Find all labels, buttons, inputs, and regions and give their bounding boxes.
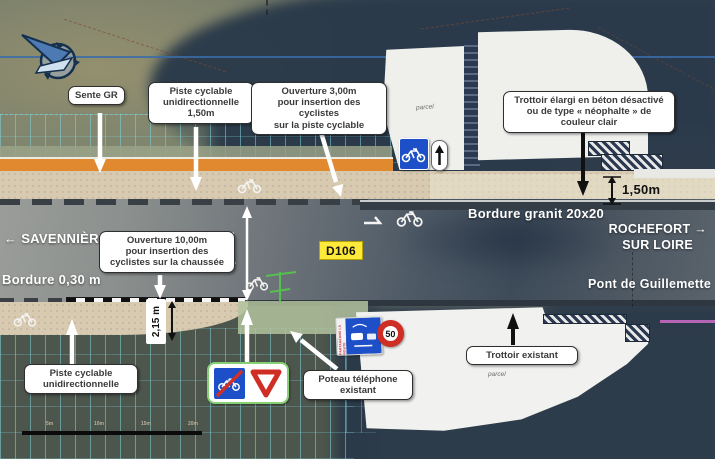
parcel-label-bottom: parcel [488, 371, 506, 378]
arrow-ouverture-10m [154, 275, 166, 299]
callout-trottoir-existant: Trottoir existant [466, 346, 578, 365]
dimension-piste-width-label: 2,15 m [146, 299, 166, 344]
bordure-granit-label: Bordure granit 20x20 [468, 206, 604, 221]
road-plan-canvas: 5,50 m [0, 0, 715, 459]
bicycle-icon [14, 314, 35, 326]
pont-de-guillemette-label: Pont de Guillemette [588, 277, 711, 291]
up-arrow-icon [432, 141, 447, 170]
rochefort-line2: SUR LOIRE [607, 238, 707, 254]
direction-rochefort: ROCHEFORT → SUR LOIRE [607, 222, 707, 253]
scale-label: 20m [188, 421, 198, 427]
bicycle-icon [239, 180, 261, 193]
callout-poteau-telephone: Poteau téléphone existant [303, 370, 413, 400]
route-badge-d106: D106 [319, 241, 363, 260]
callout-piste-cyclable-haut: Piste cyclable unidirectionnelle 1,50m [148, 82, 254, 124]
arrow-piste-bas [66, 319, 78, 365]
callout-piste-cyclable-bas: Piste cyclable unidirectionnelle [24, 364, 138, 394]
bordure-030-label: Bordure 0,30 m [2, 272, 101, 287]
arrow-ouverture-3m [320, 129, 343, 197]
yield-sign-icon [250, 367, 282, 399]
scale-bar-line [22, 431, 202, 435]
telephone-pole-icon [266, 272, 296, 302]
arrow-piste-haut [190, 127, 202, 191]
compass-icon [22, 35, 80, 80]
scale-bar: 5m 10m 15m 20m [20, 418, 215, 438]
bicycle-icon [400, 139, 427, 168]
arrow-sign-group [241, 309, 253, 363]
cycle-lane-sign [399, 138, 429, 170]
speed-limit-value: 50 [385, 328, 396, 339]
partageons-strip: PARTAGEONS LA ROUTE [336, 318, 346, 354]
arrow-sente-gr [94, 113, 106, 173]
parcel-label-top: parcel [416, 103, 434, 111]
callout-ouverture-10m: Ouverture 10,00m pour insertion des cycl… [99, 231, 235, 273]
direction-arrow-chip [431, 140, 448, 171]
arrow-trottoir-existant [507, 313, 519, 345]
end-of-cycle-path-sign [214, 368, 245, 399]
end-of-cycle-path-sign-group [207, 362, 289, 404]
scale-label: 10m [94, 421, 104, 427]
callout-trottoir-elargi: Trottoir élargi en béton désactivé ou de… [503, 91, 675, 133]
rochefort-line1: ROCHEFORT → [607, 222, 707, 238]
callout-ouverture-3m: Ouverture 3,00m pour insertion des cycli… [251, 82, 387, 135]
partageons-label: PARTAGEONS LA ROUTE [337, 318, 346, 354]
dimension-trottoir-width-label: 1,50m [622, 182, 660, 197]
scale-label: 5m [46, 421, 53, 427]
scale-label: 15m [141, 421, 151, 427]
lane-arrow-icon [364, 217, 380, 223]
arrow-poteau [290, 331, 337, 369]
bicycle-icon [398, 212, 422, 226]
dimension-piste-width [168, 301, 176, 341]
dimension-trottoir-width [603, 176, 621, 205]
town-entry-sign: PARTAGEONS LA ROUTE [335, 316, 382, 356]
piste-width-value: 2,15 m [151, 306, 162, 337]
callout-sente-gr: Sente GR [68, 86, 125, 105]
bicycle-icon [246, 278, 267, 290]
arrow-trottoir-elargi [577, 130, 589, 196]
